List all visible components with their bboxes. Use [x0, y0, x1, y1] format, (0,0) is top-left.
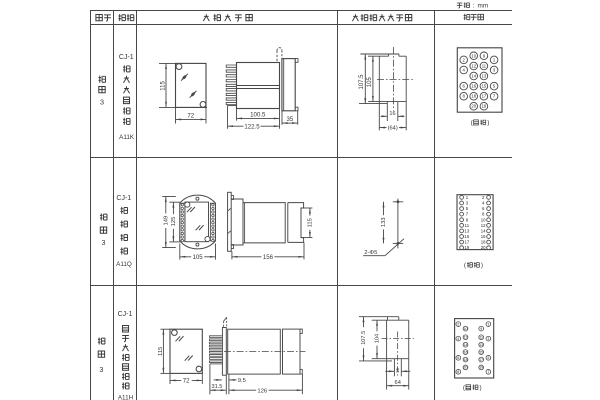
svg-text:149: 149	[164, 216, 170, 226]
svg-text:10: 10	[481, 217, 486, 222]
svg-text:2-Φ5: 2-Φ5	[364, 250, 378, 256]
svg-text:115: 115	[161, 81, 167, 91]
svg-text:5: 5	[466, 206, 469, 211]
svg-text:3: 3	[487, 337, 489, 341]
svg-text:): )	[480, 384, 482, 391]
svg-text:CJ-1: CJ-1	[118, 311, 133, 318]
svg-text:15: 15	[465, 234, 470, 239]
svg-text:6: 6	[482, 206, 485, 211]
svg-text:20: 20	[481, 245, 486, 250]
svg-text:1: 1	[487, 322, 489, 326]
svg-text:(: (	[464, 262, 467, 269]
svg-text:3: 3	[466, 201, 469, 206]
svg-text:105: 105	[193, 254, 204, 261]
svg-text:4: 4	[482, 201, 485, 206]
svg-text:12: 12	[471, 64, 476, 69]
svg-text:107.5: 107.5	[359, 74, 365, 90]
svg-text:7: 7	[466, 212, 469, 217]
svg-text:19: 19	[479, 366, 483, 370]
svg-text:11: 11	[479, 336, 483, 340]
svg-text:10: 10	[464, 327, 468, 331]
svg-text:4: 4	[457, 337, 459, 341]
svg-text:1: 1	[466, 195, 469, 200]
svg-text:72: 72	[183, 378, 190, 385]
svg-text:16: 16	[389, 111, 395, 117]
svg-text:15: 15	[482, 84, 487, 89]
svg-text:125: 125	[171, 217, 177, 227]
svg-text:64: 64	[395, 380, 401, 386]
svg-text:104: 104	[375, 334, 381, 343]
svg-text:16: 16	[464, 350, 468, 354]
svg-text:A11K: A11K	[119, 134, 135, 141]
svg-text:7: 7	[487, 370, 489, 374]
svg-text:72: 72	[187, 112, 194, 119]
svg-text:19: 19	[482, 104, 487, 109]
svg-text:133: 133	[381, 217, 387, 227]
svg-text:18: 18	[471, 94, 476, 99]
svg-text:18: 18	[464, 358, 468, 362]
svg-text:13: 13	[465, 228, 470, 233]
svg-text:CJ-1: CJ-1	[119, 54, 134, 61]
svg-text:10: 10	[471, 53, 476, 58]
svg-text:9: 9	[480, 327, 482, 331]
svg-text:14: 14	[471, 74, 476, 79]
svg-text:3: 3	[102, 238, 106, 247]
svg-text:3: 3	[99, 365, 103, 374]
svg-text:107.5: 107.5	[361, 331, 367, 345]
svg-text::: :	[472, 3, 474, 10]
svg-text:): )	[481, 262, 483, 269]
svg-text:9.5: 9.5	[238, 378, 247, 384]
svg-text:105: 105	[367, 77, 373, 88]
svg-text:14: 14	[481, 228, 486, 233]
svg-text:17: 17	[479, 358, 483, 362]
svg-text:12: 12	[481, 223, 486, 228]
svg-text:(: (	[463, 384, 466, 391]
svg-text:115: 115	[308, 218, 314, 227]
svg-text:A11H: A11H	[118, 394, 134, 400]
svg-text:6: 6	[457, 356, 459, 360]
svg-text:): )	[487, 120, 489, 127]
svg-text:13: 13	[479, 343, 483, 347]
svg-text:2: 2	[482, 195, 485, 200]
svg-text:mm: mm	[478, 3, 489, 10]
svg-text:11: 11	[482, 64, 487, 69]
svg-text:14: 14	[464, 343, 468, 347]
svg-text:20: 20	[471, 104, 476, 109]
svg-text:126: 126	[257, 388, 268, 394]
svg-text:A11Q: A11Q	[116, 261, 132, 268]
svg-text:8: 8	[482, 212, 485, 217]
svg-text:100.5: 100.5	[250, 112, 266, 119]
svg-text:17: 17	[465, 240, 470, 245]
svg-text:122.5: 122.5	[244, 123, 260, 130]
svg-text:12: 12	[464, 336, 468, 340]
svg-text:156: 156	[263, 254, 274, 261]
svg-text:13: 13	[482, 74, 487, 79]
svg-text:8: 8	[457, 370, 459, 374]
svg-text:31.5: 31.5	[211, 384, 222, 390]
svg-text:19: 19	[465, 245, 470, 250]
svg-text:20: 20	[464, 366, 468, 370]
svg-text:16: 16	[481, 234, 486, 239]
svg-text:CJ-1: CJ-1	[116, 195, 131, 202]
svg-text:18: 18	[481, 240, 486, 245]
svg-text:15: 15	[479, 350, 483, 354]
svg-text:5: 5	[487, 356, 489, 360]
svg-text:(64): (64)	[388, 126, 398, 132]
svg-text:17: 17	[482, 94, 487, 99]
svg-text:35: 35	[287, 116, 294, 123]
svg-text:2: 2	[457, 322, 459, 326]
svg-text:3: 3	[100, 98, 104, 107]
svg-text:16: 16	[471, 84, 476, 89]
svg-text:(: (	[471, 120, 474, 127]
svg-text:11: 11	[465, 223, 470, 228]
svg-text:9: 9	[466, 217, 469, 222]
svg-text:115: 115	[158, 346, 164, 356]
